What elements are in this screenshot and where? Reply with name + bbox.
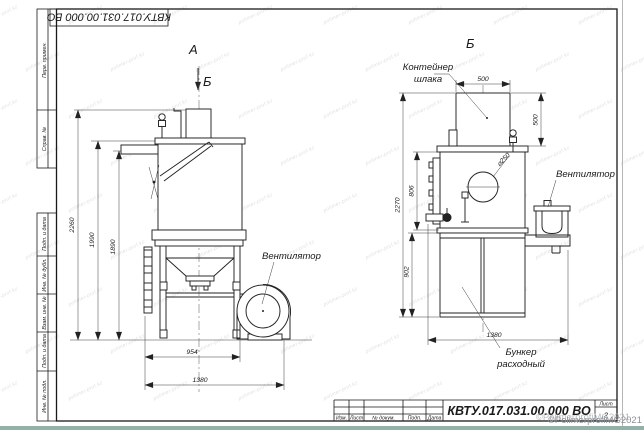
bunker-label-2: расходный bbox=[496, 359, 546, 370]
dim-1890: 1890 bbox=[110, 239, 117, 254]
dim-1380-right: 1380 bbox=[486, 332, 501, 339]
view-a: А Б bbox=[69, 42, 321, 392]
strip-vzam-inv: Взам. инв. № bbox=[42, 296, 48, 330]
tb-col-podp: Подп. bbox=[408, 415, 422, 421]
dim-2270: 2270 bbox=[395, 197, 402, 213]
dim-1380-left: 1380 bbox=[192, 377, 207, 384]
dim-954: 954 bbox=[186, 349, 198, 356]
bunker-label-1: Бункер bbox=[505, 347, 536, 358]
rotated-designation-box: КВТУ.017.031.00.000 ВО bbox=[46, 9, 171, 26]
fan-label-right: Вентилятор bbox=[556, 169, 615, 180]
bunker bbox=[440, 233, 525, 317]
strip-perv-primen: Перв. примен. bbox=[42, 42, 48, 78]
machine-left-linework bbox=[70, 108, 312, 340]
container-label-1: Контейнер bbox=[403, 62, 453, 73]
dim-806: 806 bbox=[409, 185, 416, 197]
strip-sprav-n: Справ. № bbox=[42, 127, 48, 152]
dim-2260: 2260 bbox=[69, 217, 76, 233]
strip-podp-data-2: Подп. и дата bbox=[42, 334, 48, 368]
view-b-label: Б bbox=[466, 36, 475, 51]
tb-col-ndokum: № докум. bbox=[372, 415, 395, 421]
tb-col-data: Дата bbox=[427, 415, 442, 421]
drawing-canvas: Перв. примен. Справ. № Подп. и дата Инв.… bbox=[0, 0, 644, 430]
view-a-label: А bbox=[188, 42, 198, 57]
dim-500-h: 500 bbox=[533, 114, 540, 126]
dim-1990: 1990 bbox=[89, 232, 96, 247]
tb-sheet-label: Лист bbox=[598, 402, 613, 408]
dim-902: 902 bbox=[404, 266, 411, 278]
slag-container bbox=[456, 93, 510, 146]
left-margin-strips: Перв. примен. Справ. № Подп. и дата Инв.… bbox=[37, 9, 57, 421]
tb-col-izm: Изм. bbox=[336, 415, 347, 421]
watermark-copyright: ©PolimerprofiMG2021 bbox=[548, 415, 642, 426]
view-b-arrow-label: Б bbox=[203, 74, 212, 89]
container-label-2: шлака bbox=[414, 74, 442, 85]
tb-col-list: Лист bbox=[349, 415, 364, 421]
strip-podp-data-1: Подп. и дата bbox=[42, 217, 48, 251]
drawing-sheet: polimer-prof.kzpolimer-prof.kzpolimer-pr… bbox=[0, 0, 644, 430]
fan-label-left: Вентилятор bbox=[262, 251, 321, 262]
view-b: Б bbox=[395, 36, 615, 370]
strip-inv-podl: Инв. № подл. bbox=[42, 379, 48, 412]
fan-right bbox=[525, 201, 570, 254]
bottom-teal-band bbox=[0, 426, 644, 430]
dim-500-w: 500 bbox=[477, 76, 489, 83]
rotated-designation-text: КВТУ.017.031.00.000 ВО bbox=[46, 11, 171, 23]
strip-inv-dubl: Инв. № дубл. bbox=[42, 258, 48, 291]
